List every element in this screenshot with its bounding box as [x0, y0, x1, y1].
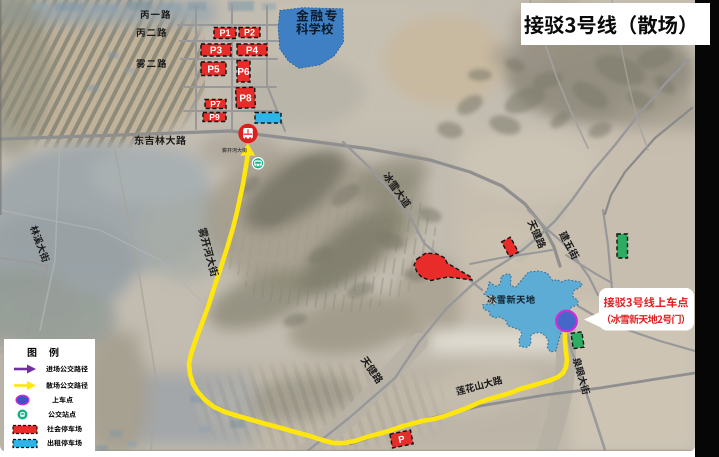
- svg-text:P9: P9: [209, 112, 220, 122]
- svg-text:P7: P7: [210, 99, 221, 109]
- svg-text:P3: P3: [210, 46, 223, 57]
- svg-text:P6: P6: [237, 67, 250, 78]
- svg-text:P5: P5: [207, 64, 220, 75]
- svg-text:P4: P4: [246, 45, 259, 56]
- svg-text:P1: P1: [219, 28, 230, 38]
- svg-text:P2: P2: [244, 28, 255, 38]
- svg-text:P8: P8: [239, 93, 252, 104]
